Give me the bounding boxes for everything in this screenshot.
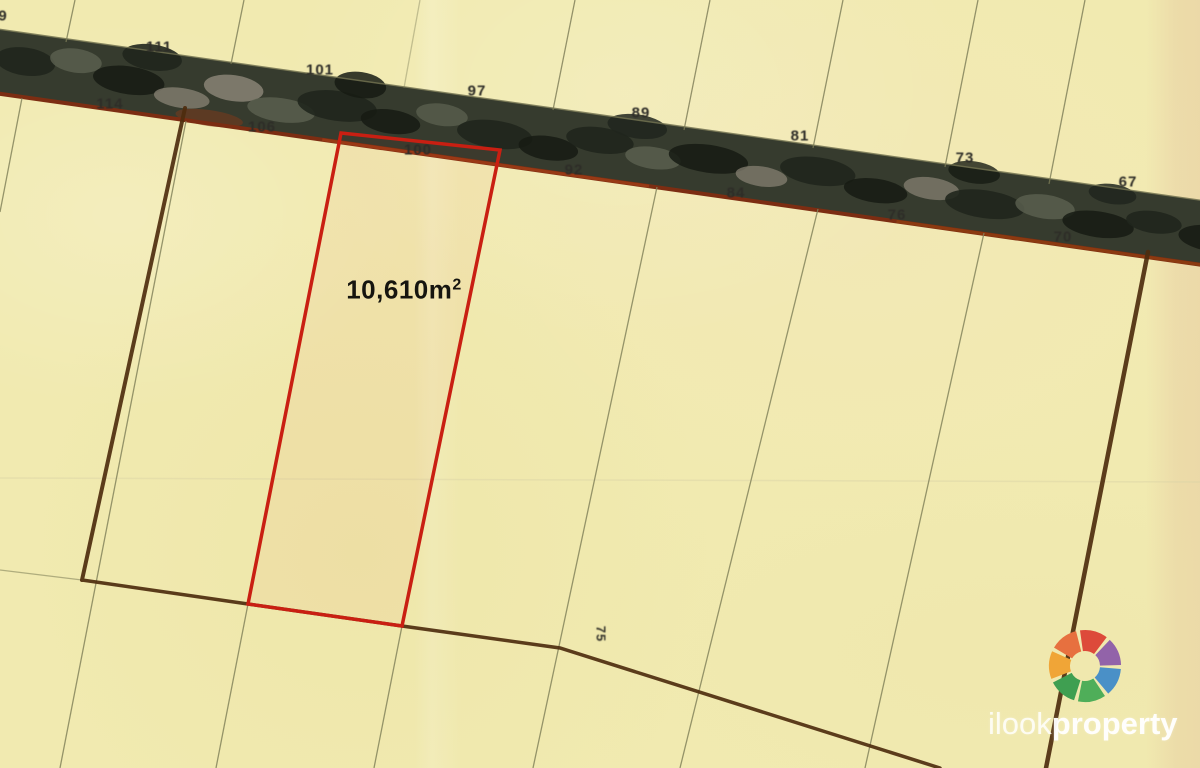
watermark-text: ilookproperty	[988, 706, 1178, 742]
brand-name-bold: property	[1052, 706, 1178, 741]
lot-number-partial: 9	[0, 8, 8, 25]
lot-number-84: 84	[727, 185, 746, 202]
lot-number-111: 111	[146, 39, 172, 56]
lot-number-labels: 111101978981736711410610092847670975	[0, 0, 1200, 768]
parcel-area-superscript: 2	[452, 277, 461, 294]
lot-number-70: 70	[1054, 229, 1073, 246]
ilookproperty-logo-icon	[1043, 624, 1127, 708]
lot-number-73: 73	[956, 150, 975, 167]
lot-number-97: 97	[468, 83, 487, 100]
brand-name-light: ilook	[988, 706, 1052, 741]
lot-number-114: 114	[96, 96, 123, 113]
lot-number-81: 81	[791, 128, 810, 145]
lot-number-67: 67	[1119, 174, 1138, 191]
lot-number-101: 101	[306, 62, 334, 79]
lot-number-106: 106	[248, 119, 276, 136]
lot-number-89: 89	[632, 105, 651, 122]
parcel-area-value: 10,610m	[346, 275, 452, 305]
lot-number-92: 92	[565, 162, 584, 179]
parcel-area-label: 10,610m2	[346, 275, 462, 306]
cadastral-map: 111101978981736711410610092847670975 10,…	[0, 0, 1200, 768]
lot-number-rotated: 75	[594, 626, 609, 642]
lot-number-100: 100	[404, 142, 432, 159]
lot-number-76: 76	[888, 207, 907, 224]
